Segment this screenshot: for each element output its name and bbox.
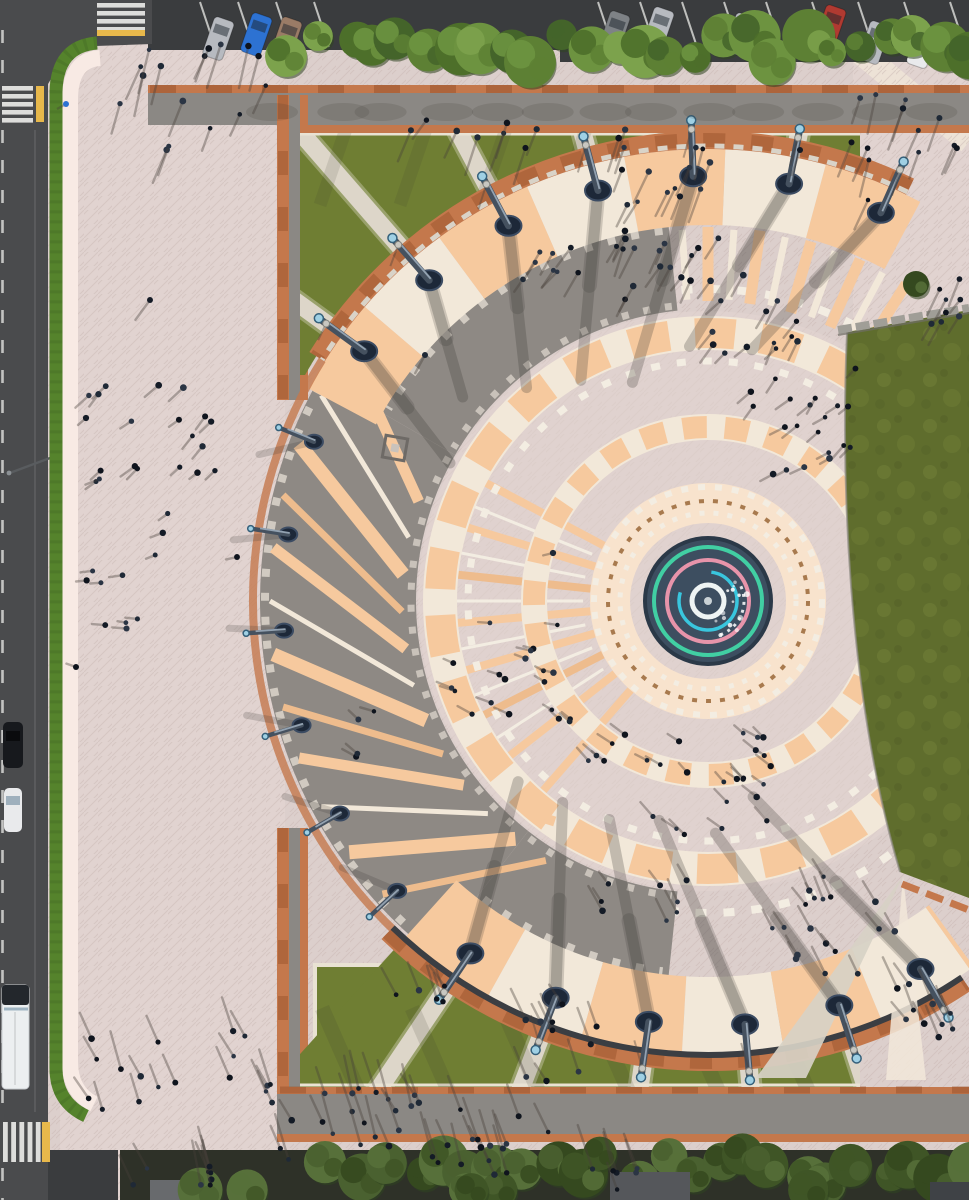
pedestrian [502,676,509,683]
tree-canopy [849,1161,868,1180]
pedestrian [491,1171,498,1178]
pedestrian [812,896,817,901]
spray-droplet [744,591,750,597]
pillar-lamp-head [243,630,249,636]
pedestrian [849,139,855,145]
tree-canopy [317,33,330,46]
pedestrian [358,1143,363,1148]
pedestrian [172,1080,178,1086]
pedestrian [503,1141,509,1147]
pedestrian [635,200,640,205]
pedestrian [522,655,528,661]
pedestrian [635,1166,640,1171]
pedestrian [943,310,949,316]
pedestrian [394,992,399,997]
pedestrian [568,245,574,251]
spray-droplet [737,615,743,621]
pedestrian [469,711,474,716]
pillar-lamp-head [579,132,588,141]
pedestrian [349,1090,355,1096]
pedestrian [440,999,446,1005]
pedestrian [866,158,871,163]
pedestrian [424,117,429,122]
pedestrian [158,63,164,69]
fountain [594,487,822,715]
pedestrian [487,1143,493,1149]
yellow-curb-west [36,86,44,122]
pedestrian [630,283,637,290]
crosswalk-bar-west [2,102,33,107]
pedestrian [833,949,838,954]
pedestrian [331,1132,336,1137]
tree-shadow-on-walk [852,103,904,121]
pedestrian [822,971,828,977]
pedestrian [658,762,663,767]
pedestrian [599,907,606,914]
pedestrian [916,128,921,133]
pedestrian [179,98,186,105]
pedestrian [230,1028,236,1034]
pedestrian [269,1100,275,1106]
pedestrian [117,101,122,106]
pedestrian [362,1121,367,1126]
pedestrian [646,168,652,174]
pedestrian [894,985,901,992]
pillar-shadow-soft [589,190,598,285]
pedestrian [740,776,745,781]
pedestrian [900,105,906,111]
bollard [746,1068,753,1075]
spray-droplet [733,580,737,584]
pedestrian [475,1137,481,1143]
pedestrian [537,249,542,254]
bollard [688,126,695,133]
pedestrian [136,1099,142,1105]
pedestrian [619,167,625,173]
crosswalk-bar-north [97,3,145,8]
black-car-windshield [6,731,20,741]
pedestrian [872,898,879,905]
pedestrian [657,882,663,888]
pillar-lamp-head [745,1076,754,1085]
pedestrian [803,902,808,907]
pedestrian [588,1041,594,1047]
pedestrian [763,308,769,314]
pedestrian [782,925,787,930]
pedestrian [88,1035,95,1042]
pedestrian [237,112,242,117]
pedestrian [693,145,699,151]
pedestrian [286,1157,291,1162]
pedestrian [753,747,759,753]
pedestrian [891,928,898,935]
pedestrian [807,925,814,932]
pedestrian [86,393,91,398]
pedestrian [496,672,502,678]
pedestrian [622,228,629,235]
pedestrian [550,251,555,256]
pedestrian [537,1018,543,1024]
pedestrian [795,424,800,429]
pedestrian [710,341,717,348]
pedestrian [488,700,493,705]
tree-shadow-on-walk [625,103,677,121]
spray-droplet [722,616,726,620]
pedestrian [372,709,376,713]
pedestrian [622,235,629,242]
pedestrian [550,1019,556,1025]
pedestrian [715,235,721,241]
pedestrian [86,1096,92,1102]
bollard [582,142,589,149]
pedestrian [180,384,187,391]
pedestrian [177,465,182,470]
pedestrian [155,1039,160,1044]
pedestrian [676,738,682,744]
pedestrian [740,272,747,279]
pedestrian [865,145,871,151]
pedestrian [935,1034,942,1041]
tree-shadow-on-walk [905,103,957,121]
pedestrian [606,881,611,886]
pedestrian [160,530,166,536]
pedestrian [762,753,767,758]
pedestrian [120,572,126,578]
tree-canopy [285,52,304,71]
pedestrian [784,467,789,472]
pedestrian [695,245,701,251]
pedestrian [231,1054,236,1059]
pedestrian [268,1082,273,1087]
pedestrian [954,145,960,151]
pedestrian [546,1130,551,1135]
pedestrian [166,144,171,149]
pillar-lamp-head [314,314,323,323]
pedestrian [486,1158,491,1163]
pedestrian [770,471,777,478]
pedestrian [208,1170,213,1175]
pedestrian [212,468,217,473]
frame-orange-strip-west [277,95,289,400]
fountain-center-jet [704,597,712,605]
tree-canopy [529,57,552,80]
pedestrian [458,1161,464,1167]
pillar-lamp-head [276,425,282,431]
pedestrian [137,1073,144,1080]
crosswalk-bar-north [97,11,145,16]
tree-canopy [385,1159,404,1178]
bollard [323,320,330,327]
crosswalk-bar-north [97,19,145,24]
pedestrian [770,926,775,931]
pedestrian [594,753,600,759]
crosswalk-bar-west [2,118,33,123]
crosswalk-bar-south [28,1122,33,1162]
pedestrian [533,260,538,265]
bollard [795,134,802,141]
pedestrian [218,42,224,48]
pedestrian [138,64,143,69]
tree-shadow-on-walk [355,103,407,121]
pedestrian [937,287,942,292]
pillar-lamp-head [304,830,310,836]
pedestrian [657,248,663,254]
pedestrian [793,955,800,962]
pedestrian [698,186,703,191]
pedestrian [689,253,694,258]
pedestrian [748,388,754,394]
pedestrian [320,1119,326,1125]
pedestrian [957,297,963,303]
pedestrian [242,1034,247,1039]
pedestrian [938,319,944,325]
pedestrian [124,620,129,625]
pedestrian [734,776,740,782]
pedestrian [245,43,251,49]
spray-droplet [728,623,733,628]
pedestrian [94,1057,99,1062]
pedestrian [621,145,626,150]
bollard [483,181,490,188]
pedestrian [416,1100,422,1106]
pedestrian [83,415,89,421]
crosswalk-bar-west [2,94,33,99]
bollard [395,241,402,248]
pedestrian [586,758,591,763]
pedestrian [559,1001,565,1007]
pedestrian [622,731,628,737]
pedestrian [768,763,774,769]
pedestrian [408,1103,414,1109]
pedestrian [873,92,878,97]
crosswalk-bar-south [19,1122,24,1162]
pedestrian [208,419,214,425]
tree-shadow-on-walk [472,103,524,121]
yellow-curb-south [42,1122,50,1162]
pedestrian [474,134,480,140]
pedestrian [684,877,690,883]
pedestrian [665,190,670,195]
tree-canopy [694,54,708,68]
pedestrian [709,329,715,335]
pedestrian [130,1182,136,1188]
pedestrian [208,126,213,131]
pedestrian [610,1168,615,1173]
pedestrian [675,910,679,914]
pedestrian [921,1020,928,1027]
pedestrian [506,711,513,718]
pedestrian [436,1160,441,1165]
pedestrian [450,660,456,666]
pedestrian [534,126,540,132]
pedestrian [156,1085,160,1089]
pedestrian [855,971,861,977]
pedestrian [90,568,95,573]
tree-shadow-on-walk [732,103,784,121]
tree-shadow-on-walk [522,103,574,121]
pedestrian [147,48,151,52]
pillar-lamp-head [531,1046,540,1055]
tree-canopy [692,1171,708,1187]
pedestrian [725,800,729,804]
pedestrian [442,984,447,989]
pedestrian [234,554,240,560]
pedestrian [422,352,428,358]
pedestrian [684,769,691,776]
pedestrian [416,987,422,993]
pedestrian [550,1027,556,1033]
pedestrian [153,553,158,558]
pedestrian [755,735,760,740]
tree-canopy [765,1161,785,1181]
tree-canopy [771,57,792,78]
pedestrian [386,1143,393,1150]
yellow-curb-north [97,30,145,36]
pedestrian [631,245,637,251]
pedestrian [801,464,807,470]
pedestrian [816,430,821,435]
pedestrian [794,338,801,345]
pillar-lamp-head [366,914,372,920]
pedestrian [199,443,205,449]
pedestrian [434,996,440,1002]
pillar-lamp-head [637,1073,646,1082]
pedestrian [543,1078,549,1084]
pedestrian [504,1170,509,1175]
pedestrian [207,1164,213,1170]
pedestrian [145,1166,149,1170]
pedestrian [916,150,921,155]
pedestrian [789,334,794,339]
pedestrian [848,445,853,450]
pedestrian [664,918,669,923]
pedestrian [760,734,767,741]
pedestrian [100,1107,105,1112]
white-car [4,788,22,832]
pedestrian [396,1127,402,1133]
street-south-stub [48,1150,118,1200]
pedestrian [718,298,723,303]
pedestrian [821,897,826,902]
pedestrian [176,417,182,423]
pedestrian [599,899,604,904]
pedestrian [835,403,840,408]
pillar-shadow-soft [508,226,517,307]
pedestrian [823,415,828,420]
pedestrian [857,95,863,101]
pedestrian [956,313,962,319]
pedestrian [610,741,615,746]
pedestrian [841,443,846,448]
pedestrian [278,1146,283,1151]
pedestrian [205,45,212,52]
pedestrian [575,270,581,276]
pedestrian [615,1187,619,1191]
pillar-shadow-soft [556,900,559,998]
pedestrian [135,616,140,621]
pedestrian [687,165,693,171]
pedestrian [135,466,140,471]
pedestrian [741,731,746,736]
crosswalk-bar-south [3,1122,8,1162]
pedestrian [622,126,628,132]
tree-canopy [915,281,927,293]
pedestrian [522,145,528,151]
pedestrian [430,1154,435,1159]
frame-orange-strip-bottom-inner [277,1134,969,1142]
spray-droplet [731,588,735,592]
pedestrian [458,1107,463,1112]
pedestrian [707,277,714,284]
pillar-lamp-head [262,733,268,739]
pedestrian [590,1166,595,1171]
pedestrian [950,1026,955,1031]
pedestrian [528,648,534,654]
pedestrian [98,468,104,474]
pedestrian [542,679,548,685]
pedestrian [936,115,942,121]
pedestrian [478,1144,485,1151]
pedestrian [721,780,726,785]
pedestrian [906,981,912,987]
pedestrian [84,577,90,583]
crosswalk-bar-south [11,1122,16,1162]
pedestrian [97,476,102,481]
pedestrian [264,1089,268,1093]
pedestrian [852,366,858,372]
pedestrian [719,826,724,831]
pedestrian [470,1137,475,1142]
pedestrian [687,277,694,284]
pedestrian [102,622,108,628]
pedestrian [614,244,619,249]
pedestrian [504,120,510,126]
pedestrian [550,669,556,675]
tree-shadow-on-walk [421,103,473,121]
pillar-lamp-head [248,526,254,532]
pedestrian [657,263,663,269]
pedestrian [208,1183,213,1188]
pedestrian [576,1069,582,1075]
pedestrian [255,53,261,59]
pedestrian [794,319,799,324]
pedestrian [764,818,769,823]
pedestrian [828,894,833,899]
crosswalk-bar-south [36,1122,41,1162]
pedestrian [155,382,162,389]
spray-droplet [732,600,735,603]
plaza-aerial-scene [0,0,969,1200]
pedestrian [903,97,908,102]
pedestrian [488,621,493,626]
spray-droplet [718,633,722,637]
pedestrian [95,391,101,397]
pedestrian [813,396,818,401]
white-car-windshield [6,796,20,805]
pedestrian [356,1086,361,1091]
pedestrian [118,1066,124,1072]
cyclist [63,101,69,107]
rooftop [610,1172,690,1200]
pedestrian [673,186,678,191]
pillar-lamp-head [795,124,804,133]
pedestrian [453,689,458,694]
pedestrian [202,413,208,419]
pedestrian [678,274,684,280]
street-lamp-head [7,471,12,476]
pedestrian [445,1142,451,1148]
pedestrian [788,396,793,401]
